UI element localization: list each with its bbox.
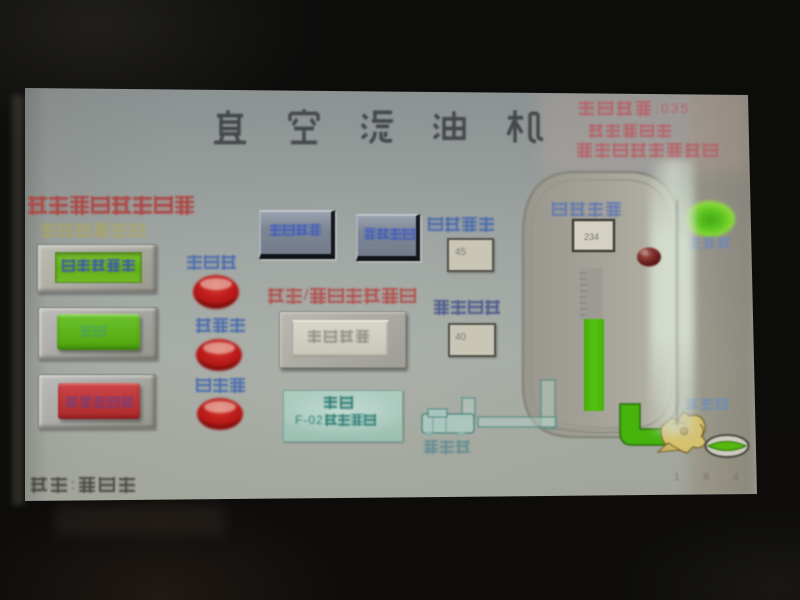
- svg-text:234: 234: [584, 232, 599, 242]
